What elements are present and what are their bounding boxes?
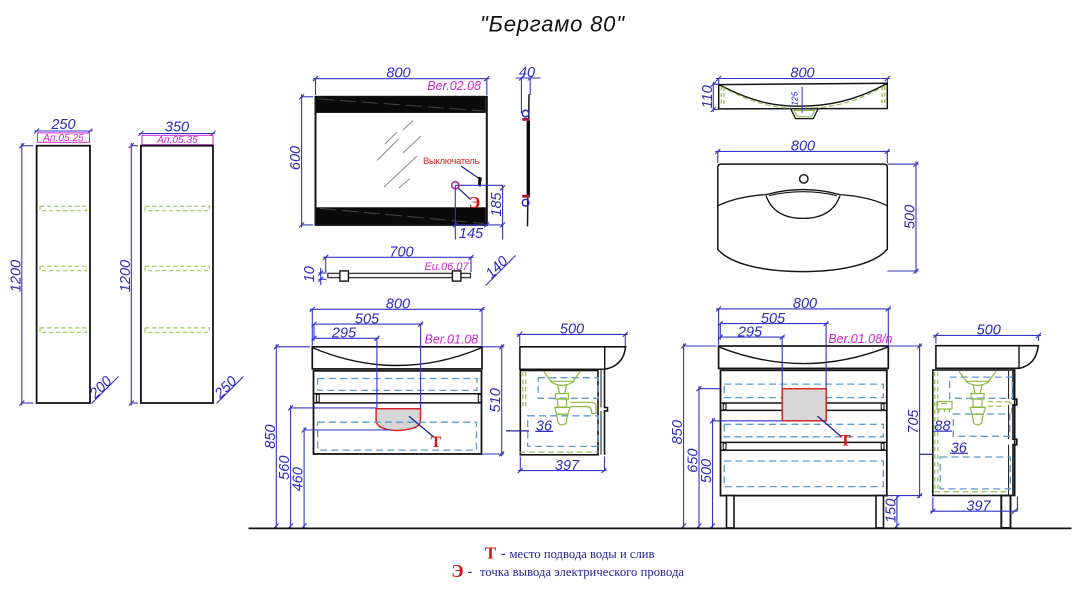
svg-text:510: 510 xyxy=(488,388,504,412)
svg-text:36: 36 xyxy=(951,440,968,456)
svg-text:10: 10 xyxy=(302,266,318,282)
svg-text:88: 88 xyxy=(934,418,950,434)
svg-text:505: 505 xyxy=(355,311,380,327)
svg-text:397: 397 xyxy=(555,458,580,474)
svg-text:1200: 1200 xyxy=(8,260,24,292)
svg-text:505: 505 xyxy=(761,311,786,327)
svg-text:-: - xyxy=(501,547,506,562)
svg-text:705: 705 xyxy=(906,409,922,434)
svg-text:место подвода воды и слив: место подвода воды и слив xyxy=(510,547,655,561)
svg-text:140: 140 xyxy=(483,253,511,281)
svg-text:850: 850 xyxy=(670,420,686,444)
svg-text:800: 800 xyxy=(793,296,817,312)
svg-text:295: 295 xyxy=(331,326,357,342)
svg-text:-: - xyxy=(468,565,473,580)
svg-text:350: 350 xyxy=(165,120,189,136)
svg-text:Э: Э xyxy=(469,193,481,212)
svg-text:125: 125 xyxy=(790,91,800,105)
svg-text:800: 800 xyxy=(386,297,410,313)
svg-text:Э: Э xyxy=(451,561,463,581)
svg-text:460: 460 xyxy=(291,467,307,491)
svg-text:800: 800 xyxy=(386,66,410,82)
svg-text:Ап.05.25: Ап.05.25 xyxy=(42,133,84,144)
svg-text:110: 110 xyxy=(700,85,716,108)
svg-text:точка вывода электрического пр: точка вывода электрического провода xyxy=(480,565,684,579)
svg-text:Т: Т xyxy=(840,433,851,450)
svg-text:Т: Т xyxy=(485,544,497,563)
svg-text:Ber.01.08/n: Ber.01.08/n xyxy=(828,332,892,346)
svg-text:150: 150 xyxy=(883,499,899,523)
svg-text:Eu.06.07: Eu.06.07 xyxy=(424,261,469,273)
svg-text:185: 185 xyxy=(489,191,505,216)
svg-text:Выключатель: Выключатель xyxy=(423,156,480,167)
svg-text:800: 800 xyxy=(791,138,815,154)
svg-text:800: 800 xyxy=(790,66,814,82)
svg-text:145: 145 xyxy=(459,226,484,242)
svg-text:500: 500 xyxy=(903,205,919,229)
svg-text:Ber.02.08: Ber.02.08 xyxy=(427,79,481,93)
svg-text:36: 36 xyxy=(536,418,553,434)
svg-text:40: 40 xyxy=(519,65,535,81)
svg-text:Ап.05.35: Ап.05.35 xyxy=(156,135,198,146)
svg-text:850: 850 xyxy=(263,424,279,448)
svg-text:250: 250 xyxy=(211,373,240,402)
svg-text:"Бергамо 80": "Бергамо 80" xyxy=(480,12,625,37)
svg-text:600: 600 xyxy=(288,146,304,170)
svg-text:500: 500 xyxy=(977,323,1001,339)
svg-text:Т: Т xyxy=(431,434,442,451)
svg-text:500: 500 xyxy=(560,322,584,338)
svg-text:Ber.01.08: Ber.01.08 xyxy=(425,333,479,347)
svg-text:500: 500 xyxy=(699,459,715,483)
svg-text:250: 250 xyxy=(50,117,75,133)
svg-text:397: 397 xyxy=(966,498,991,514)
svg-text:700: 700 xyxy=(389,244,413,260)
svg-text:295: 295 xyxy=(737,324,763,340)
svg-text:1200: 1200 xyxy=(118,260,134,292)
